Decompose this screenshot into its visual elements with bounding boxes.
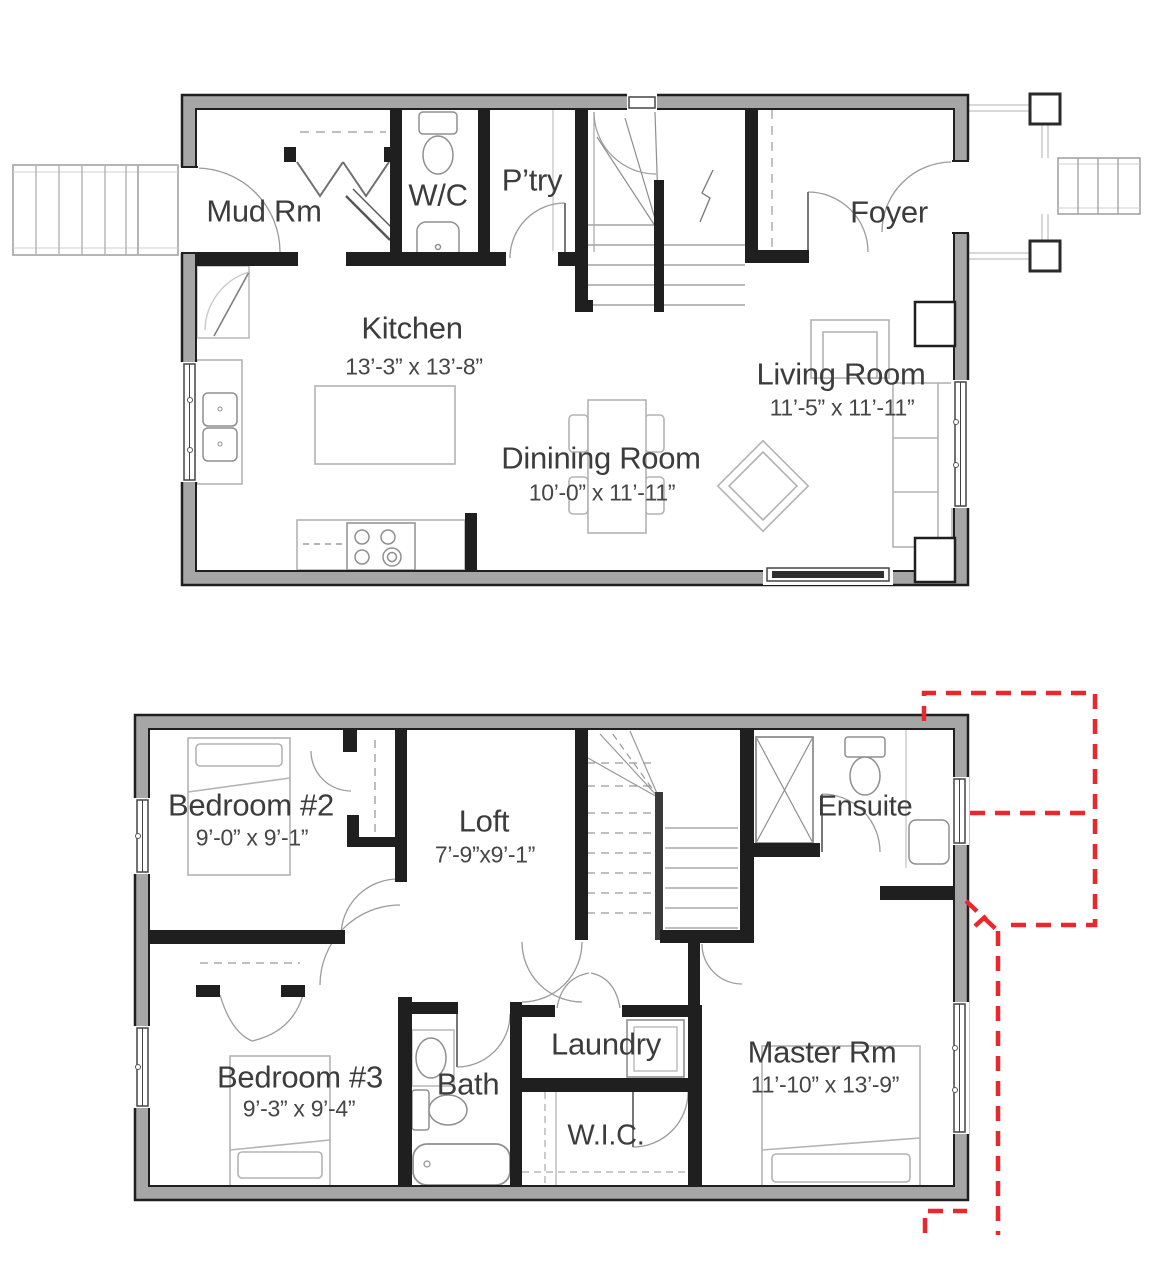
- bath-fixtures: [412, 1030, 510, 1185]
- bedroom2-closet-door-swing: [311, 751, 351, 791]
- accent-chair: [718, 441, 809, 532]
- label-bedroom2-dims: 9’-0” x 9’-1”: [196, 827, 308, 850]
- label-living-room-dims: 11’-5” x 11’-11”: [770, 397, 915, 420]
- bathtub: [413, 1144, 510, 1185]
- porch-steps: [1058, 158, 1140, 214]
- label-bedroom3-dims: 9’-3” x 9’-4”: [243, 1098, 355, 1121]
- label-kitchen: Kitchen: [361, 313, 462, 344]
- bedroom2-window: [133, 798, 152, 874]
- bath-door-swing: [457, 1014, 510, 1067]
- floor-plan-drawing: [0, 0, 1154, 1266]
- label-foyer: Foyer: [850, 197, 928, 228]
- living-room-window: [951, 380, 970, 508]
- front-door-opening: [951, 160, 970, 234]
- label-dining-room: Dinining Room: [501, 443, 700, 474]
- stove: [347, 523, 415, 570]
- front-porch: [962, 94, 1140, 271]
- hall-door-swing: [522, 942, 582, 1002]
- label-ensuite: Ensuite: [818, 793, 913, 822]
- corner-closet: [197, 266, 249, 338]
- rear-window-seat: [763, 566, 893, 585]
- revision-dashed-outline: [924, 693, 1095, 1235]
- label-master-room-dims: 11’-10” x 13’-9”: [751, 1074, 899, 1097]
- label-living-room: Living Room: [756, 359, 925, 390]
- sink-fixture: [909, 820, 949, 864]
- label-loft-dims: 7’-9”x9’-1”: [435, 844, 535, 867]
- laundry-double-doors: [557, 973, 620, 1008]
- toilet-fixture: [845, 737, 885, 795]
- label-laundry: Laundry: [551, 1029, 661, 1060]
- label-wc: W/C: [408, 180, 467, 211]
- label-bath: Bath: [437, 1069, 500, 1100]
- main-floor-plan: [13, 93, 1140, 585]
- ensuite-window: [950, 777, 969, 845]
- mudroom-entry-opening: [180, 167, 199, 253]
- label-wic: W.I.C.: [567, 1122, 644, 1151]
- kitchen-window: [180, 362, 199, 482]
- label-bedroom2: Bedroom #2: [168, 790, 334, 821]
- mudroom-closet-bifold: [297, 162, 389, 196]
- upper-floor-plan: [133, 693, 1095, 1235]
- label-mud-room: Mud Rm: [206, 196, 321, 227]
- label-dining-room-dims: 10’-0” x 11’-11”: [529, 482, 675, 505]
- bedroom2-door-swing: [341, 879, 398, 936]
- bedroom3-window: [133, 1026, 152, 1108]
- label-loft: Loft: [459, 806, 510, 837]
- shower: [756, 737, 813, 843]
- bedroom3-closet-doors: [200, 963, 303, 1041]
- chimney-niche-upper: [915, 302, 955, 346]
- master-window: [950, 1002, 969, 1134]
- label-kitchen-dims: 13’-3” x 13’-8”: [345, 356, 482, 379]
- porch-posts: [1030, 94, 1060, 271]
- master-door-swing: [702, 944, 742, 984]
- exterior-stairs-left: [13, 165, 178, 255]
- label-bedroom3: Bedroom #3: [217, 1062, 383, 1093]
- kitchen-island: [315, 386, 455, 464]
- pantry-door-swing: [510, 203, 565, 258]
- chimney-niche-lower: [915, 538, 955, 582]
- bedroom3-door-swing: [320, 905, 400, 985]
- label-pantry: P’try: [502, 165, 563, 196]
- toilet-fixture: [419, 112, 457, 134]
- stair-window: [627, 93, 657, 112]
- label-master-room: Master Rm: [748, 1037, 897, 1068]
- floor-plan-page: Mud Rm W/C P’try Foyer Kitchen 13’-3” x …: [0, 0, 1154, 1266]
- living-furniture: [718, 320, 952, 547]
- main-stairs: [587, 110, 772, 305]
- kitchen-door-leaf: [346, 196, 390, 240]
- hall-door-swing-2: [522, 942, 582, 1002]
